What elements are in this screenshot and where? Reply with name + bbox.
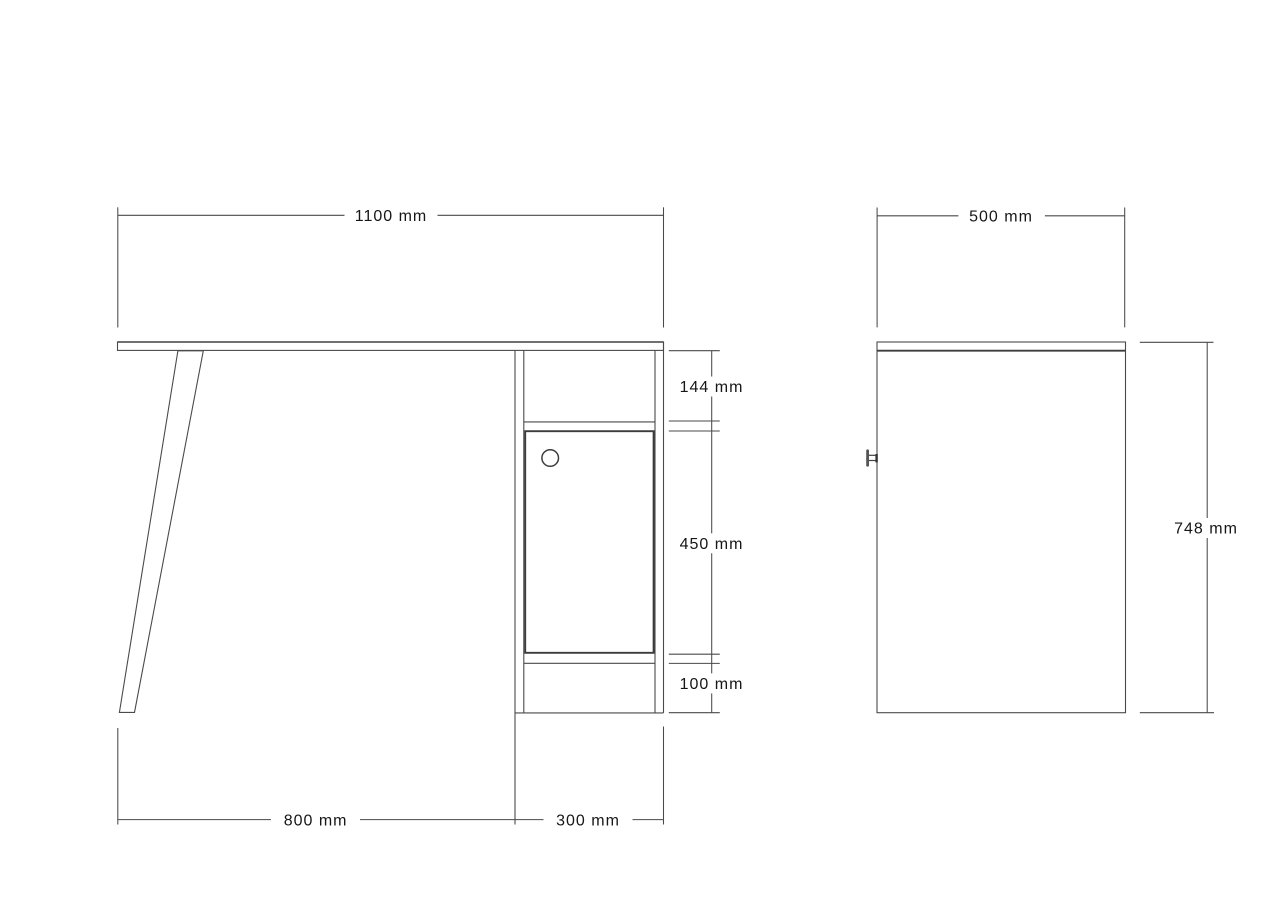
svg-text:800 mm: 800 mm bbox=[284, 812, 348, 829]
svg-text:1100 mm: 1100 mm bbox=[355, 208, 428, 225]
svg-text:100 mm: 100 mm bbox=[680, 676, 744, 693]
svg-text:748 mm: 748 mm bbox=[1174, 521, 1238, 538]
svg-text:144 mm: 144 mm bbox=[680, 379, 744, 396]
svg-text:300 mm: 300 mm bbox=[556, 812, 620, 829]
svg-text:500 mm: 500 mm bbox=[969, 209, 1033, 226]
svg-text:450 mm: 450 mm bbox=[680, 536, 744, 553]
